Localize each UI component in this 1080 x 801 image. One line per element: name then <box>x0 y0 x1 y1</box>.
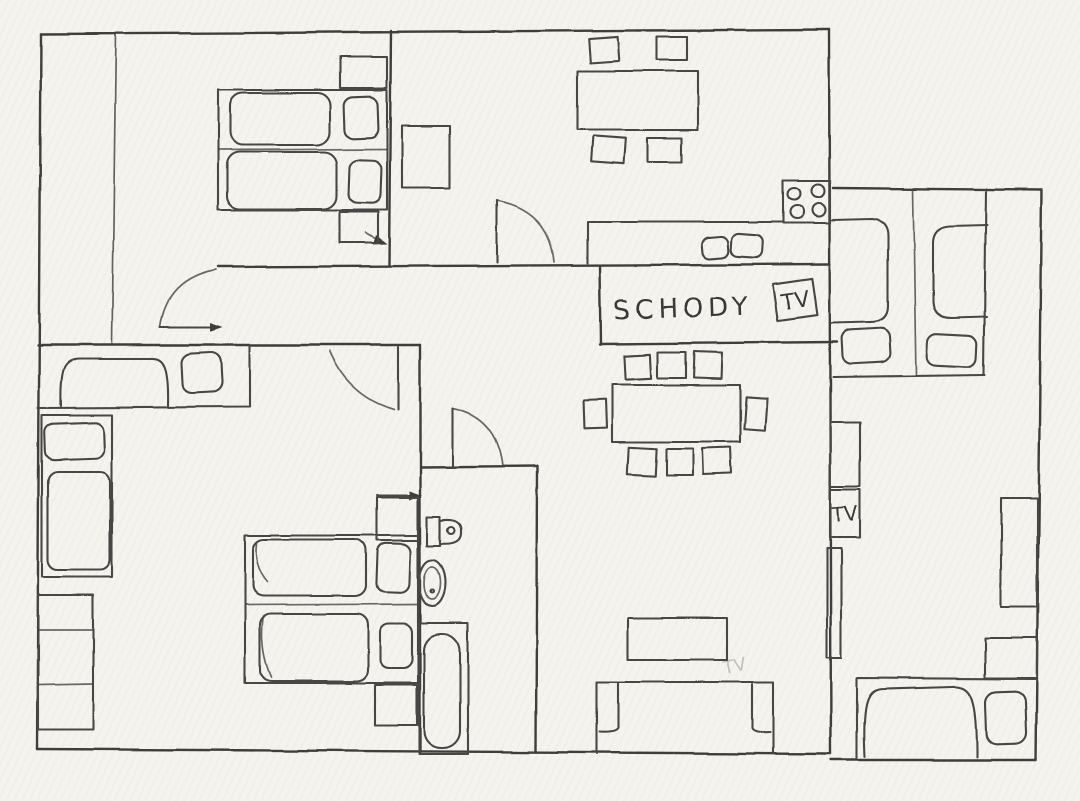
chair <box>588 37 619 63</box>
sofa <box>597 682 773 754</box>
pillow <box>376 542 411 592</box>
doors <box>160 201 554 500</box>
stairs-area: SCHODY TV <box>613 278 817 326</box>
wall-outer-top <box>41 30 829 34</box>
chair <box>648 138 682 162</box>
wall-corridor-top <box>218 264 830 267</box>
wall-bathroom-north <box>420 466 537 467</box>
wall-stairs-bottom <box>600 342 837 344</box>
sink-drain-dot <box>431 590 434 593</box>
nightstand <box>340 57 387 88</box>
tv-hall-label: TV <box>779 287 812 316</box>
wall-stairs-west <box>600 266 601 344</box>
toilet-flush-dot <box>448 528 455 535</box>
sink-basin-inner <box>424 567 440 599</box>
kitchen-door-arc <box>497 201 554 262</box>
walls <box>37 30 1042 760</box>
kitchen-dining <box>402 37 830 263</box>
chair <box>624 354 651 379</box>
annex-bed-platform-east <box>984 189 986 375</box>
sofa-armrest <box>752 684 770 732</box>
chair <box>666 449 693 475</box>
toilet-bowl <box>440 520 461 544</box>
pillow <box>348 159 381 203</box>
burner <box>790 206 804 219</box>
nightstand <box>985 638 1037 678</box>
wall-outer-right-main <box>829 30 831 754</box>
floor-plan-drawing: SCHODY TV TV <box>0 0 1080 801</box>
coffee-table <box>628 618 727 660</box>
blanket-fold <box>262 618 271 677</box>
cabinet <box>830 422 860 487</box>
bed <box>61 359 168 406</box>
blanket-fold <box>256 543 268 582</box>
radiator-hatch-strip <box>827 548 841 658</box>
chair <box>584 400 607 429</box>
chair <box>657 37 687 60</box>
chair <box>744 397 767 430</box>
toilet-tank <box>427 517 440 546</box>
wall-kitchen-west <box>389 31 391 265</box>
pillow <box>44 422 104 460</box>
pillow <box>985 691 1027 744</box>
fridge-cabinet <box>402 126 450 188</box>
bedroom-right-top <box>832 219 987 367</box>
pillow <box>841 328 891 364</box>
chair <box>694 352 723 379</box>
bed-divider <box>245 604 418 605</box>
living-room: TV <box>597 618 773 754</box>
pillow <box>181 352 223 394</box>
bed <box>260 614 368 681</box>
dining-center <box>584 352 768 476</box>
wall-annex-top <box>833 188 1042 190</box>
stairs-label: SCHODY <box>613 292 753 327</box>
bed-block <box>245 535 418 683</box>
bedroom-left <box>38 345 418 729</box>
burner <box>812 185 825 198</box>
room-right-bottom: TV <box>827 422 1037 758</box>
burner <box>788 188 801 200</box>
annex-bed-divider <box>913 189 916 376</box>
hall-door-arc <box>160 270 216 327</box>
chair <box>591 136 626 164</box>
bed <box>933 225 987 318</box>
pillow <box>380 623 412 668</box>
wardrobe <box>1001 498 1037 607</box>
hall-door-arrow <box>210 323 223 332</box>
bathroom <box>419 517 468 754</box>
sink-basin <box>701 236 729 259</box>
bathtub <box>424 634 460 748</box>
pillow <box>343 96 378 138</box>
shelf <box>377 497 418 540</box>
bed <box>864 687 977 757</box>
dining-table <box>577 71 698 130</box>
tv-faint-label: TV <box>721 654 750 680</box>
wall-left-strip-partition <box>112 33 116 343</box>
wardrobe-shelf-line <box>38 630 93 685</box>
annex-bed-platform-south <box>833 375 985 377</box>
bed-block <box>42 415 112 577</box>
bed <box>48 472 110 570</box>
bed <box>253 539 366 596</box>
bed <box>227 152 337 209</box>
nightstand <box>340 212 378 243</box>
burner <box>813 204 826 217</box>
floor-plan-page: SCHODY TV TV <box>0 0 1080 801</box>
pillow <box>926 334 978 368</box>
bed <box>832 219 888 323</box>
nightstand <box>375 685 417 725</box>
tv-cabinet-label: TV <box>830 501 859 527</box>
wall-bathroom-east <box>536 466 537 752</box>
bed <box>230 93 330 145</box>
left-bedroom-door-arc <box>330 351 394 409</box>
chair <box>627 447 656 475</box>
sink-basin <box>730 233 763 258</box>
dining-table <box>612 385 740 442</box>
bedroom-top-left <box>218 57 387 243</box>
sofa-armrest <box>600 683 618 732</box>
wardrobe <box>38 595 93 729</box>
bathroom-door-arc <box>453 408 503 466</box>
bed-divider <box>219 149 386 150</box>
chair <box>658 352 686 378</box>
chair <box>703 448 732 475</box>
